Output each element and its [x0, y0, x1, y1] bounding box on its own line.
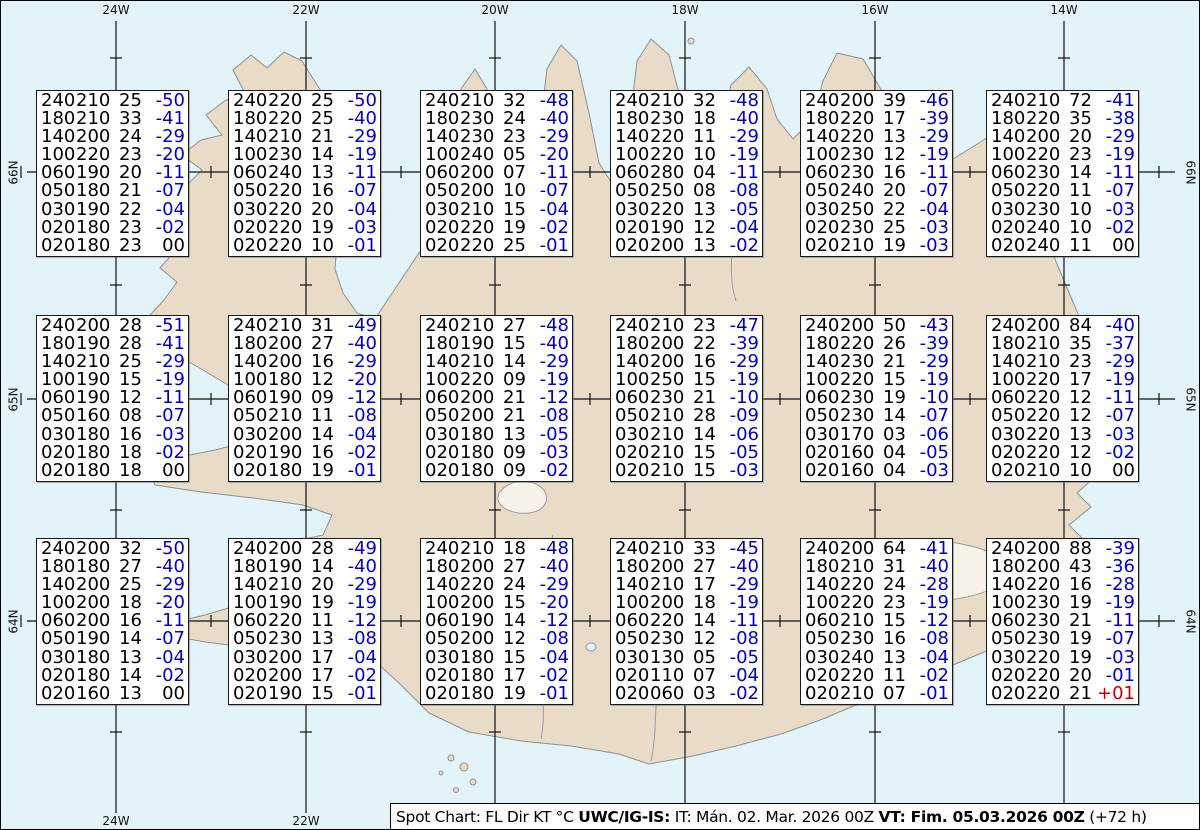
wind-direction: 220: [268, 237, 305, 255]
temperature-c: -07: [1095, 182, 1135, 200]
wind-direction: 170: [840, 426, 877, 444]
spot-box: 24021023-4718020022-3914020016-291002501…: [610, 315, 763, 482]
wind-direction: 240: [1026, 237, 1063, 255]
temperature-c: -07: [337, 182, 377, 200]
footer-text-bold: UWC/IG-IS:: [578, 808, 670, 826]
spot-row: 05023014-07: [805, 407, 949, 425]
wind-direction: 060: [650, 685, 687, 703]
spot-row: 0201801800: [41, 462, 185, 480]
flight-level: 020: [615, 237, 650, 255]
flight-level: 050: [233, 182, 268, 200]
wind-speed-kt: 14: [883, 407, 909, 425]
footer-info-bar: Spot Chart: FL Dir KT °C UWC/IG-IS: IT: …: [390, 803, 1200, 830]
wind-direction: 210: [1026, 462, 1063, 480]
wind-direction: 210: [650, 462, 687, 480]
flight-level: 030: [991, 201, 1026, 219]
temperature-c: 00: [1095, 462, 1135, 480]
flight-level: 050: [615, 407, 650, 425]
footer-text: IT: Mán. 02. Mar. 2026 00Z: [670, 808, 878, 826]
temperature-c: -05: [529, 426, 569, 444]
wind-direction: 230: [268, 630, 305, 648]
flight-level: 030: [41, 649, 76, 667]
spot-chart-map: 24W22W20W18W16W14W24W22W66N66N65N65N64N6…: [0, 0, 1200, 830]
wind-speed-kt: 13: [1069, 426, 1095, 444]
wind-speed-kt: 21: [119, 182, 145, 200]
spot-row: 03018015-04: [425, 649, 569, 667]
flight-level: 020: [615, 685, 650, 703]
wind-speed-kt: 09: [503, 462, 529, 480]
temperature-c: -08: [529, 630, 569, 648]
spot-row: 03020017-04: [233, 649, 377, 667]
wind-direction: 230: [840, 407, 877, 425]
spot-box: 24021033-4518020027-4014021017-291002001…: [610, 538, 763, 705]
wind-speed-kt: 19: [1069, 630, 1095, 648]
flight-level: 020: [41, 462, 76, 480]
wind-speed-kt: 07: [883, 685, 909, 703]
wind-speed-kt: 15: [503, 201, 529, 219]
spot-box: 24020032-5018018027-4014020025-291002001…: [36, 538, 189, 705]
spot-row: 02022021+01: [991, 685, 1135, 703]
temperature-c: -07: [909, 407, 949, 425]
temperature-c: -03: [1095, 649, 1135, 667]
lat-label-right: 64N: [1184, 609, 1197, 635]
footer-text-bold: VT: Fim. 05.03.2026 00Z: [879, 808, 1085, 826]
temperature-c: -01: [337, 237, 377, 255]
temperature-c: 00: [1095, 237, 1135, 255]
wind-speed-kt: 16: [311, 182, 337, 200]
wind-direction: 210: [650, 426, 687, 444]
lon-label-bottom: 22W: [292, 815, 319, 828]
temperature-c: -03: [719, 462, 759, 480]
wind-direction: 180: [460, 685, 497, 703]
wind-direction: 220: [650, 201, 687, 219]
spot-row: 03025022-04: [805, 201, 949, 219]
spot-box: 24022025-5018022025-4014021021-291002301…: [228, 90, 381, 257]
lat-label-right: 65N: [1184, 387, 1197, 413]
temperature-c: -07: [1095, 407, 1135, 425]
wind-direction: 200: [268, 649, 305, 667]
spot-row: 02021015-03: [615, 462, 759, 480]
spot-row: 05021028-09: [615, 407, 759, 425]
spot-row: 03021015-04: [425, 201, 569, 219]
spot-row: 05024020-07: [805, 182, 949, 200]
lat-label-left: 64N: [8, 609, 21, 635]
spot-box: 24020084-4018021035-3714021023-291002201…: [986, 315, 1139, 482]
wind-direction: 180: [76, 426, 113, 444]
spot-row: 03018013-05: [425, 426, 569, 444]
lon-label-top: 16W: [861, 4, 888, 17]
wind-speed-kt: 11: [1069, 182, 1095, 200]
spot-box: 24020028-5118019028-4114021025-291001901…: [36, 315, 189, 482]
temperature-c: -04: [337, 649, 377, 667]
flight-level: 050: [991, 407, 1026, 425]
spot-row: 02022025-01: [425, 237, 569, 255]
spot-row: 05022011-07: [991, 182, 1135, 200]
wind-direction: 210: [840, 685, 877, 703]
spot-row: 02020013-02: [615, 237, 759, 255]
flight-level: 050: [805, 407, 840, 425]
wind-speed-kt: 19: [503, 685, 529, 703]
wind-speed-kt: 17: [311, 649, 337, 667]
wind-speed-kt: 11: [1069, 237, 1095, 255]
lon-label-bottom: 24W: [102, 815, 129, 828]
temperature-c: -07: [529, 182, 569, 200]
wind-speed-kt: 22: [883, 201, 909, 219]
flight-level: 050: [233, 630, 268, 648]
temperature-c: -06: [909, 426, 949, 444]
spot-row: 05020021-08: [425, 407, 569, 425]
wind-direction: 230: [1026, 630, 1063, 648]
temperature-c: -08: [337, 630, 377, 648]
wind-speed-kt: 10: [503, 182, 529, 200]
temperature-c: -05: [719, 201, 759, 219]
wind-direction: 210: [268, 407, 305, 425]
spot-box: 24020028-4918019014-4014021020-291001901…: [228, 538, 381, 705]
lon-label-top: 20W: [481, 4, 508, 17]
spot-box: 24020050-4318022026-3914023021-291002201…: [800, 315, 953, 482]
wind-direction: 180: [76, 462, 113, 480]
temperature-c: -01: [529, 237, 569, 255]
spot-box: 24021032-4818023024-4014023023-291002400…: [420, 90, 573, 257]
spot-row: 02019015-01: [233, 685, 377, 703]
flight-level: 020: [233, 462, 268, 480]
wind-speed-kt: 05: [693, 649, 719, 667]
spot-row: 0201802300: [41, 237, 185, 255]
flight-level: 030: [805, 649, 840, 667]
wind-speed-kt: 13: [883, 649, 909, 667]
spot-row: 0202401100: [991, 237, 1135, 255]
wind-speed-kt: 12: [693, 630, 719, 648]
wind-direction: 220: [1026, 407, 1063, 425]
footer-text: Spot Chart: FL Dir KT °C: [396, 808, 578, 826]
wind-direction: 180: [460, 462, 497, 480]
wind-direction: 200: [460, 182, 497, 200]
temperature-c: -08: [719, 630, 759, 648]
wind-direction: 220: [1026, 685, 1063, 703]
temperature-c: -03: [909, 237, 949, 255]
flight-level: 030: [233, 426, 268, 444]
flight-level: 050: [425, 182, 460, 200]
lon-label-top: 14W: [1050, 4, 1077, 17]
wind-direction: 190: [268, 685, 305, 703]
wind-speed-kt: 13: [119, 685, 145, 703]
spot-row: 02018019-01: [425, 685, 569, 703]
wind-speed-kt: 16: [119, 426, 145, 444]
spot-row: 05022016-07: [233, 182, 377, 200]
temperature-c: -03: [1095, 426, 1135, 444]
temperature-c: -04: [529, 649, 569, 667]
temperature-c: -08: [529, 407, 569, 425]
spot-row: 05020010-07: [425, 182, 569, 200]
wind-direction: 250: [650, 182, 687, 200]
spot-row: 05023012-08: [615, 630, 759, 648]
flight-level: 030: [615, 426, 650, 444]
wind-direction: 180: [76, 182, 113, 200]
temperature-c: -02: [529, 462, 569, 480]
spot-row: 02021019-03: [805, 237, 949, 255]
wind-direction: 210: [460, 201, 497, 219]
wind-speed-kt: 19: [1069, 649, 1095, 667]
spot-row: 05023013-08: [233, 630, 377, 648]
wind-direction: 240: [840, 649, 877, 667]
wind-direction: 230: [1026, 201, 1063, 219]
wind-speed-kt: 08: [693, 182, 719, 200]
temperature-c: -05: [719, 649, 759, 667]
temperature-c: -08: [337, 407, 377, 425]
lat-label-right: 66N: [1184, 160, 1197, 186]
spot-row: 03019022-04: [41, 201, 185, 219]
wind-speed-kt: 14: [311, 426, 337, 444]
flight-level: 030: [41, 201, 76, 219]
wind-speed-kt: 20: [883, 182, 909, 200]
temperature-c: -01: [337, 685, 377, 703]
wind-direction: 220: [268, 182, 305, 200]
wind-speed-kt: 10: [1069, 462, 1095, 480]
flight-level: 030: [425, 201, 460, 219]
spot-row: 03023010-03: [991, 201, 1135, 219]
temperature-c: -04: [529, 201, 569, 219]
wind-direction: 200: [460, 630, 497, 648]
flight-level: 050: [805, 630, 840, 648]
wind-direction: 160: [76, 407, 113, 425]
flight-level: 050: [425, 630, 460, 648]
wind-speed-kt: 14: [693, 426, 719, 444]
wind-direction: 190: [76, 630, 113, 648]
temperature-c: -09: [719, 407, 759, 425]
spot-row: 0202101000: [991, 462, 1135, 480]
temperature-c: -04: [337, 201, 377, 219]
wind-speed-kt: 13: [503, 426, 529, 444]
flight-level: 020: [425, 685, 460, 703]
temperature-c: -07: [145, 182, 185, 200]
temperature-c: -04: [337, 426, 377, 444]
temperature-c: -01: [337, 462, 377, 480]
wind-speed-kt: 08: [119, 407, 145, 425]
wind-speed-kt: 21: [1069, 685, 1095, 703]
wind-speed-kt: 21: [503, 407, 529, 425]
spot-row: 05019014-07: [41, 630, 185, 648]
wind-speed-kt: 11: [311, 407, 337, 425]
temperature-c: -04: [145, 201, 185, 219]
wind-speed-kt: 19: [883, 237, 909, 255]
wind-speed-kt: 13: [693, 201, 719, 219]
spot-row: 05023016-08: [805, 630, 949, 648]
flight-level: 050: [41, 630, 76, 648]
temperature-c: 00: [145, 685, 185, 703]
spot-row: 03018013-04: [41, 649, 185, 667]
spot-row: 02022010-01: [233, 237, 377, 255]
flight-level: 030: [991, 649, 1026, 667]
wind-direction: 220: [268, 201, 305, 219]
wind-direction: 220: [1026, 426, 1063, 444]
flight-level: 020: [233, 237, 268, 255]
lon-label-top: 18W: [671, 4, 698, 17]
flight-level: 030: [41, 426, 76, 444]
flight-level: 050: [41, 182, 76, 200]
wind-speed-kt: 15: [311, 685, 337, 703]
spot-row: 05018021-07: [41, 182, 185, 200]
wind-direction: 250: [840, 201, 877, 219]
wind-speed-kt: 16: [883, 630, 909, 648]
wind-direction: 200: [650, 237, 687, 255]
spot-row: 03013005-05: [615, 649, 759, 667]
temperature-c: -07: [909, 182, 949, 200]
wind-direction: 220: [460, 237, 497, 255]
spot-row: 03022013-05: [615, 201, 759, 219]
temperature-c: -03: [1095, 201, 1135, 219]
temperature-c: -04: [909, 201, 949, 219]
wind-direction: 230: [650, 630, 687, 648]
flight-level: 030: [615, 649, 650, 667]
flight-level: 020: [41, 237, 76, 255]
wind-direction: 220: [1026, 182, 1063, 200]
flight-level: 050: [805, 182, 840, 200]
spot-row: 03018016-03: [41, 426, 185, 444]
flight-level: 030: [805, 426, 840, 444]
wind-speed-kt: 15: [503, 649, 529, 667]
spot-box: 24021018-4818020027-4014022024-291002001…: [420, 538, 573, 705]
flight-level: 020: [805, 237, 840, 255]
flight-level: 030: [233, 649, 268, 667]
temperature-c: -02: [719, 237, 759, 255]
temperature-c: -08: [909, 630, 949, 648]
wind-direction: 130: [650, 649, 687, 667]
spot-row: 05016008-07: [41, 407, 185, 425]
temperature-c: -04: [909, 649, 949, 667]
temperature-c: -08: [719, 182, 759, 200]
wind-speed-kt: 28: [693, 407, 719, 425]
spot-box: 24021027-4818019015-4014021014-291002200…: [420, 315, 573, 482]
flight-level: 020: [991, 237, 1026, 255]
flight-level: 030: [233, 201, 268, 219]
temperature-c: -07: [1095, 630, 1135, 648]
wind-speed-kt: 20: [311, 201, 337, 219]
lat-label-left: 65N: [8, 387, 21, 413]
wind-speed-kt: 18: [119, 462, 145, 480]
flight-level: 030: [425, 426, 460, 444]
flight-level: 020: [991, 462, 1026, 480]
spot-row: 03022013-03: [991, 426, 1135, 444]
wind-direction: 180: [76, 237, 113, 255]
wind-speed-kt: 04: [883, 462, 909, 480]
wind-speed-kt: 23: [119, 237, 145, 255]
spot-row: 03022019-03: [991, 649, 1135, 667]
wind-direction: 200: [268, 426, 305, 444]
flight-level: 020: [805, 685, 840, 703]
temperature-c: -02: [719, 685, 759, 703]
spot-box: 24020064-4118021031-4014022024-281002202…: [800, 538, 953, 705]
wind-speed-kt: 25: [503, 237, 529, 255]
spot-row: 02016004-03: [805, 462, 949, 480]
spot-row: 05022012-07: [991, 407, 1135, 425]
temperature-c: -06: [719, 426, 759, 444]
spot-row: 03021014-06: [615, 426, 759, 444]
flight-level: 020: [991, 685, 1026, 703]
temperature-c: 00: [145, 462, 185, 480]
wind-direction: 180: [460, 426, 497, 444]
spot-row: 03020014-04: [233, 426, 377, 444]
wind-direction: 210: [840, 237, 877, 255]
wind-speed-kt: 22: [119, 201, 145, 219]
temperature-c: -03: [145, 426, 185, 444]
temperature-c: -01: [909, 685, 949, 703]
temperature-c: -01: [529, 685, 569, 703]
temperature-c: -07: [145, 407, 185, 425]
spot-row: 05025008-08: [615, 182, 759, 200]
spot-row: 0201601300: [41, 685, 185, 703]
temperature-c: 00: [145, 237, 185, 255]
wind-direction: 190: [76, 201, 113, 219]
spot-row: 03024013-04: [805, 649, 949, 667]
wind-direction: 160: [840, 462, 877, 480]
lon-label-top: 24W: [102, 4, 129, 17]
wind-speed-kt: 13: [119, 649, 145, 667]
flight-level: 020: [41, 685, 76, 703]
flight-level: 020: [615, 462, 650, 480]
wind-direction: 240: [840, 182, 877, 200]
temperature-c: +01: [1095, 685, 1135, 703]
spot-row: 02021007-01: [805, 685, 949, 703]
wind-speed-kt: 13: [693, 237, 719, 255]
spot-row: 02018009-02: [425, 462, 569, 480]
flight-level: 050: [991, 182, 1026, 200]
flight-level: 020: [233, 685, 268, 703]
flight-level: 050: [991, 630, 1026, 648]
flight-level: 030: [805, 201, 840, 219]
flight-level: 050: [425, 407, 460, 425]
spot-row: 03022020-04: [233, 201, 377, 219]
flight-level: 020: [805, 462, 840, 480]
wind-speed-kt: 12: [503, 630, 529, 648]
flight-level: 020: [425, 237, 460, 255]
wind-speed-kt: 14: [119, 630, 145, 648]
spot-box: 24021072-4118022035-3814020020-291002202…: [986, 90, 1139, 257]
flight-level: 030: [615, 201, 650, 219]
temperature-c: -04: [145, 649, 185, 667]
spot-row: 05021011-08: [233, 407, 377, 425]
flight-level: 050: [233, 407, 268, 425]
temperature-c: -03: [909, 462, 949, 480]
wind-speed-kt: 03: [693, 685, 719, 703]
spot-box: 24021031-4918020027-4014020016-291001801…: [228, 315, 381, 482]
spot-row: 02006003-02: [615, 685, 759, 703]
wind-speed-kt: 10: [1069, 201, 1095, 219]
wind-direction: 210: [650, 407, 687, 425]
wind-speed-kt: 03: [883, 426, 909, 444]
wind-direction: 180: [460, 649, 497, 667]
footer-text: (+72 h): [1085, 808, 1147, 826]
spot-row: 02018019-01: [233, 462, 377, 480]
lat-label-left: 66N: [8, 160, 21, 186]
flight-level: 030: [991, 426, 1026, 444]
flight-level: 050: [615, 630, 650, 648]
wind-direction: 160: [76, 685, 113, 703]
temperature-c: -07: [145, 630, 185, 648]
wind-direction: 180: [268, 462, 305, 480]
flight-level: 050: [615, 182, 650, 200]
spot-box: 24021025-5018021033-4114020024-291002202…: [36, 90, 189, 257]
wind-direction: 230: [840, 630, 877, 648]
lon-label-top: 22W: [292, 4, 319, 17]
spot-row: 05020012-08: [425, 630, 569, 648]
flight-level: 020: [425, 462, 460, 480]
spot-box: 24020039-4618022017-3914022013-291002301…: [800, 90, 953, 257]
spot-box: 24021032-4818023018-4014022011-291002201…: [610, 90, 763, 257]
flight-level: 030: [425, 649, 460, 667]
spot-row: 03017003-06: [805, 426, 949, 444]
wind-direction: 220: [1026, 649, 1063, 667]
wind-speed-kt: 15: [693, 462, 719, 480]
